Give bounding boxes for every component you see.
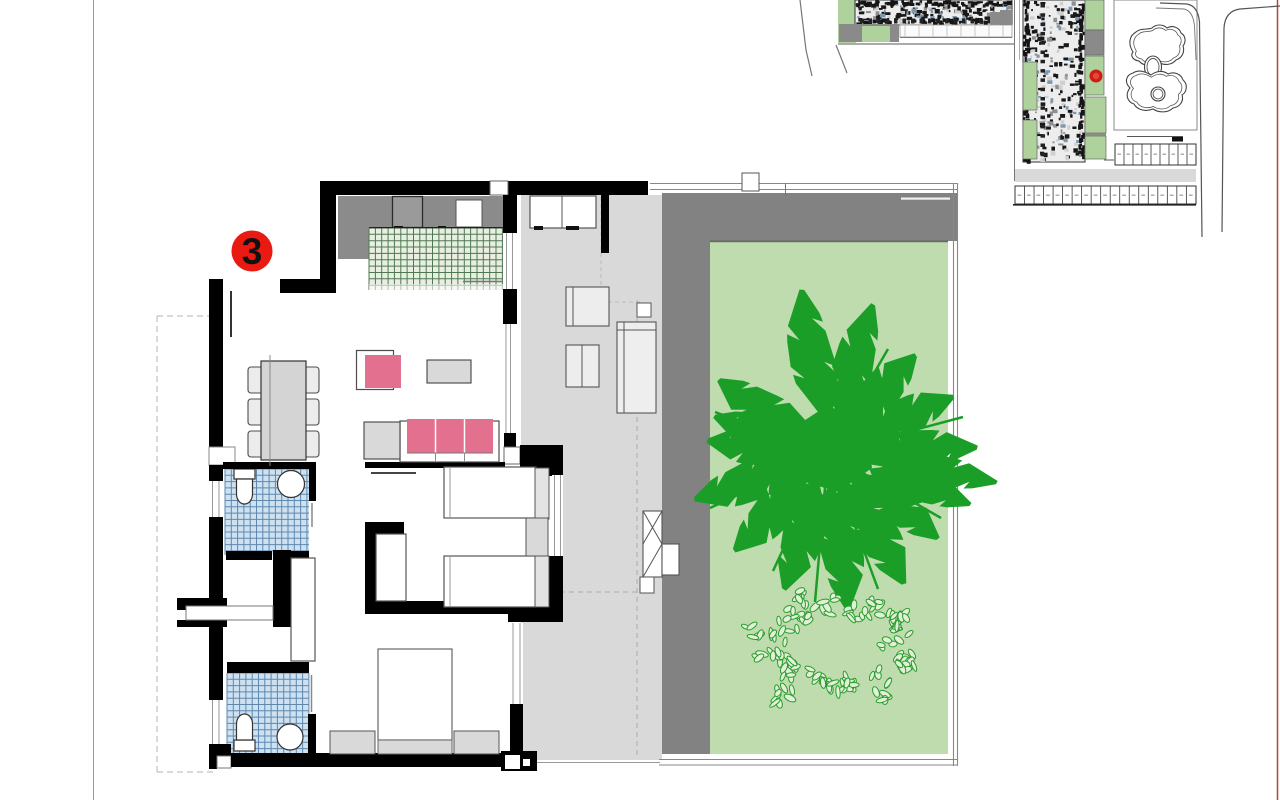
svg-text:3: 3 [242, 231, 263, 272]
